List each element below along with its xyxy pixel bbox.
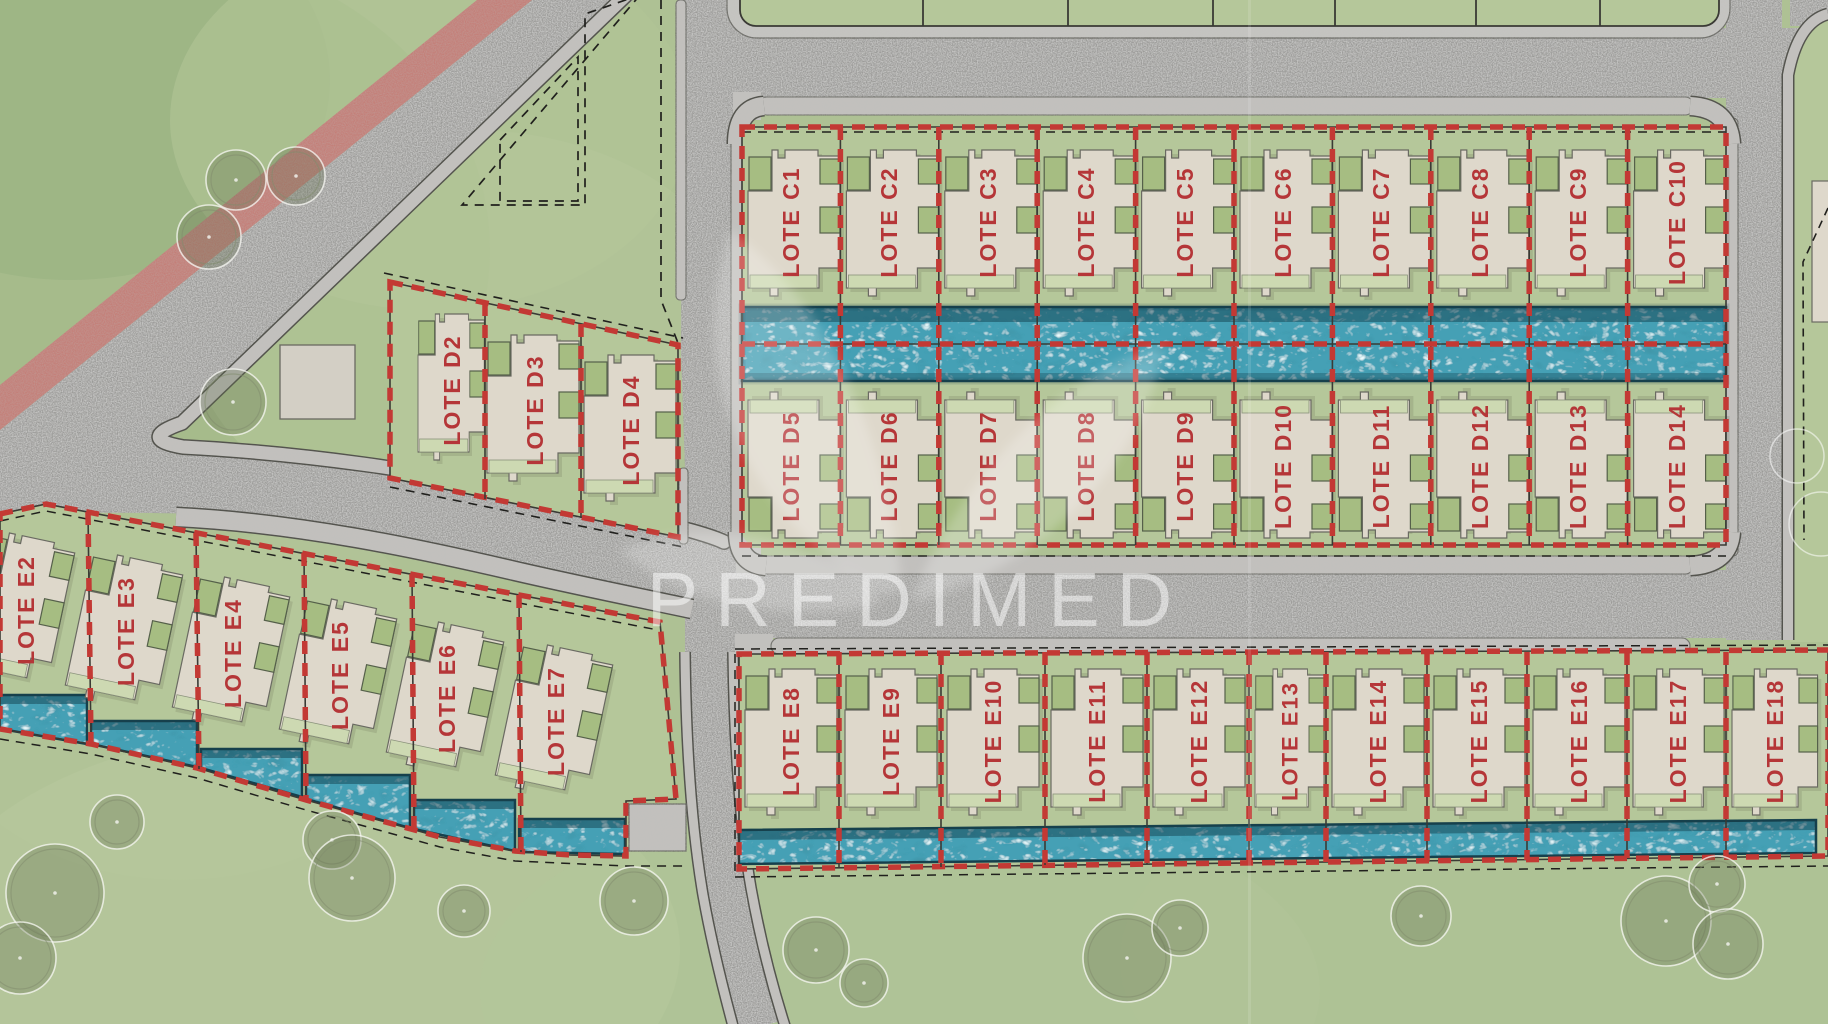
- svg-text:LOTE C4: LOTE C4: [1073, 166, 1099, 277]
- svg-text:LOTE C1: LOTE C1: [778, 166, 804, 277]
- svg-text:LOTE E18: LOTE E18: [1762, 679, 1788, 804]
- svg-text:LOTE C9: LOTE C9: [1565, 166, 1591, 277]
- svg-text:LOTE E17: LOTE E17: [1665, 679, 1691, 804]
- svg-text:LOTE E8: LOTE E8: [778, 686, 804, 796]
- svg-text:LOTE D14: LOTE D14: [1664, 403, 1690, 529]
- svg-text:LOTE E7: LOTE E7: [543, 666, 569, 776]
- svg-text:LOTE E10: LOTE E10: [980, 679, 1006, 804]
- svg-text:LOTE D4: LOTE D4: [618, 374, 644, 485]
- svg-text:LOTE E12: LOTE E12: [1186, 679, 1212, 804]
- svg-text:LOTE C3: LOTE C3: [975, 166, 1001, 277]
- svg-text:LOTE D11: LOTE D11: [1368, 404, 1394, 529]
- svg-text:LOTE E13: LOTE E13: [1278, 681, 1303, 801]
- svg-text:LOTE D2: LOTE D2: [439, 334, 465, 445]
- svg-text:LOTE D13: LOTE D13: [1565, 403, 1591, 529]
- svg-text:LOTE C6: LOTE C6: [1270, 166, 1296, 277]
- svg-text:LOTE E14: LOTE E14: [1365, 679, 1391, 804]
- svg-text:PREDIMED: PREDIMED: [647, 557, 1189, 643]
- svg-text:LOTE D10: LOTE D10: [1270, 403, 1296, 529]
- svg-text:LOTE C2: LOTE C2: [876, 166, 902, 277]
- svg-text:LOTE C8: LOTE C8: [1467, 166, 1493, 277]
- svg-text:LOTE E11: LOTE E11: [1084, 679, 1110, 802]
- svg-text:LOTE E2: LOTE E2: [13, 555, 39, 665]
- svg-text:LOTE D9: LOTE D9: [1172, 410, 1198, 521]
- svg-text:LOTE E3: LOTE E3: [113, 576, 139, 686]
- svg-text:LOTE E16: LOTE E16: [1566, 679, 1592, 804]
- svg-text:LOTE C7: LOTE C7: [1368, 166, 1394, 277]
- svg-text:LOTE D12: LOTE D12: [1467, 403, 1493, 529]
- svg-text:LOTE E15: LOTE E15: [1466, 679, 1492, 804]
- svg-text:LOTE E9: LOTE E9: [878, 686, 904, 796]
- svg-text:LOTE E5: LOTE E5: [327, 620, 353, 730]
- svg-text:LOTE C5: LOTE C5: [1172, 166, 1198, 277]
- svg-text:LOTE E6: LOTE E6: [434, 643, 460, 753]
- svg-text:LOTE E4: LOTE E4: [220, 598, 246, 708]
- svg-text:LOTE C10: LOTE C10: [1664, 159, 1690, 285]
- svg-text:LOTE D3: LOTE D3: [522, 354, 548, 465]
